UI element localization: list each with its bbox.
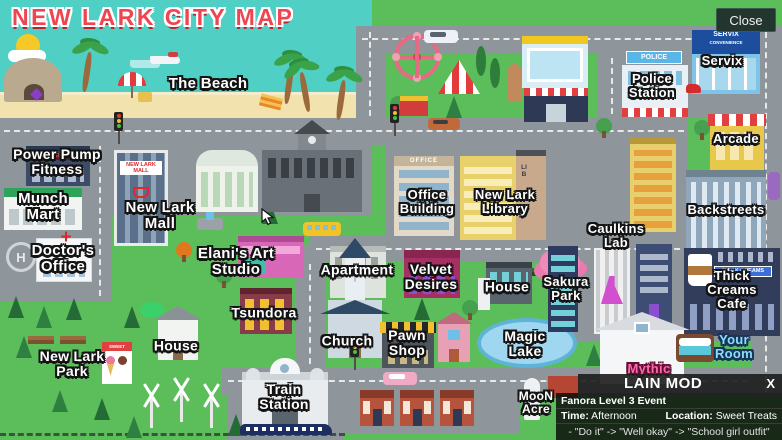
- cypress-tree-icon: [476, 46, 486, 76]
- row-house[interactable]: [440, 390, 474, 426]
- building-windows: [268, 158, 356, 178]
- park-bench-icon: [60, 336, 86, 344]
- door: [413, 409, 422, 426]
- bed-icon: [676, 334, 714, 362]
- building-windows: [718, 252, 774, 262]
- windmill-icon: [150, 392, 153, 428]
- map-label-caulkins-lab[interactable]: Caulkins Lab: [588, 222, 645, 250]
- map-label-tsundora[interactable]: Tsundora: [231, 305, 296, 320]
- map-label-munch-mart[interactable]: Munch Mart: [18, 191, 68, 223]
- window: [403, 401, 410, 414]
- road-marking: [369, 32, 371, 116]
- windmill-icon: [180, 386, 183, 422]
- mod-event-row: Fanora Level 3 Event: [556, 393, 782, 409]
- building-windows: [201, 172, 253, 207]
- windmill-icon: [210, 392, 213, 428]
- door: [449, 349, 459, 362]
- cypress-tree-icon: [490, 58, 500, 88]
- blanket: [679, 346, 711, 355]
- map-label-new-lark-mall[interactable]: New Lark Mall: [125, 200, 194, 232]
- shop-awning: [524, 88, 588, 96]
- lain-mod-panel: LAIN MOD X Fanora Level 3 Event Time: Af…: [556, 374, 782, 440]
- pillow: [679, 338, 711, 346]
- tree-icon: [52, 390, 68, 412]
- police-awning: [622, 108, 688, 117]
- station-turret: [246, 368, 260, 380]
- map-label-servix[interactable]: Servix: [702, 54, 743, 68]
- tree-icon: [94, 398, 110, 420]
- car-icon: [383, 372, 417, 385]
- circus-tent-icon: [438, 60, 480, 94]
- awning-shop-building[interactable]: [524, 88, 588, 122]
- map-label-apartment[interactable]: Apartment: [321, 262, 394, 277]
- tree-icon: [124, 306, 140, 328]
- map-label-your-room[interactable]: Your Room: [715, 333, 753, 361]
- time-value: Afternoon: [591, 410, 637, 422]
- mouse-cursor-icon: [260, 208, 276, 226]
- servix-sign: SERVIX CONVENIENCE: [692, 30, 760, 54]
- arcade-awning: [708, 114, 766, 126]
- umbrella-pole: [131, 86, 133, 98]
- mod-panel-title: LAIN MOD: [624, 375, 702, 392]
- car-icon: [768, 172, 780, 200]
- sweet-treats-stand[interactable]: SWEET TREATS: [102, 342, 132, 384]
- beach-chair-icon: [138, 92, 152, 102]
- map-label-new-lark-park[interactable]: New Lark Park: [40, 349, 105, 379]
- map-label-church[interactable]: Church: [322, 333, 373, 348]
- map-label-power-pump-fitness[interactable]: Power Pump Fitness: [13, 147, 101, 177]
- map-label-elanis-art-studio[interactable]: Elani's Art Studio: [198, 246, 274, 278]
- map-label-house-west[interactable]: House: [154, 338, 198, 353]
- statue-icon: [508, 64, 521, 102]
- office-sign: OFFICE: [394, 156, 454, 166]
- clock-icon: [308, 136, 316, 144]
- door: [373, 409, 382, 426]
- boat-icon: [150, 56, 180, 64]
- map-label-office-building[interactable]: Office Building: [400, 188, 454, 216]
- train-icon: [240, 424, 332, 435]
- tree-icon: [462, 300, 478, 316]
- scooter-icon: [686, 84, 701, 93]
- city-map: POWER PUMP + H NEW LARK MALL: [0, 0, 782, 440]
- car-icon: [424, 30, 458, 43]
- sweet-treats-sign: SWEET TREATS: [102, 342, 132, 351]
- storefront-building[interactable]: [522, 36, 588, 88]
- traffic-light-icon: [390, 104, 399, 123]
- servix-sign-subtext: CONVENIENCE: [692, 40, 760, 45]
- tree-icon: [126, 416, 142, 438]
- highrise-yellow-building[interactable]: [630, 138, 676, 232]
- store-window: [527, 48, 583, 82]
- map-label-thick-creams-cafe[interactable]: Thick Creams Cafe: [707, 269, 757, 311]
- map-label-magic-lake[interactable]: Magic Lake: [504, 329, 545, 359]
- tree-icon: [414, 298, 430, 320]
- building-windows: [634, 150, 672, 228]
- map-label-backstreets[interactable]: Backstreets: [687, 203, 764, 217]
- row-house[interactable]: [360, 390, 394, 426]
- map-label-pawn-shop[interactable]: Pawn Shop: [388, 328, 426, 358]
- train-windows: [246, 427, 326, 431]
- mod-time: Time: Afternoon: [561, 409, 637, 423]
- library-sign: LIB: [519, 164, 529, 178]
- door: [546, 104, 566, 122]
- map-label-the-beach[interactable]: The Beach: [169, 76, 248, 92]
- mod-dialog-row: - "Do it" -> "Well okay" -> "School girl…: [556, 424, 782, 440]
- bus-icon: [303, 222, 341, 236]
- bush-icon: [140, 302, 164, 318]
- map-label-train-station[interactable]: Train Station: [259, 382, 309, 412]
- boat-cabin: [168, 52, 178, 57]
- tree-icon: [446, 96, 462, 118]
- road-marking: [4, 130, 684, 132]
- map-label-police-station[interactable]: Police Station: [629, 72, 675, 100]
- road-marking: [309, 264, 311, 364]
- dome-building[interactable]: [196, 166, 258, 212]
- city-hall-building[interactable]: [262, 150, 362, 212]
- map-label-arcade[interactable]: Arcade: [713, 132, 759, 146]
- attic-window: [634, 322, 650, 334]
- road-marking: [611, 58, 613, 114]
- door: [453, 409, 462, 426]
- map-label-house-east[interactable]: House: [485, 279, 529, 294]
- location-value: Sweet Treats: [716, 410, 777, 422]
- station-clock-icon: [280, 364, 289, 373]
- mod-panel-header: LAIN MOD X: [578, 374, 782, 393]
- pink-house-building[interactable]: [438, 324, 470, 362]
- map-label-moon-acre[interactable]: MooN Acre: [519, 390, 554, 416]
- mall-sign: NEW LARK MALL: [120, 161, 162, 175]
- station-turret: [310, 368, 324, 380]
- cone-icon: [107, 364, 114, 376]
- close-button[interactable]: Close: [716, 8, 776, 32]
- tree-icon: [596, 118, 612, 134]
- shopping-basket-icon: [133, 187, 149, 198]
- page-title: NEW LARK CITY MAP: [12, 4, 294, 31]
- park-bench-icon: [28, 336, 54, 344]
- church-roof: [320, 300, 390, 314]
- map-label-new-lark-library[interactable]: New Lark Library: [475, 188, 535, 216]
- tree-icon: [36, 306, 52, 328]
- row-house[interactable]: [400, 390, 434, 426]
- time-label: Time:: [561, 410, 589, 422]
- mod-location: Location: Sweet Treats: [666, 409, 777, 423]
- dome-building-roof: [196, 150, 258, 166]
- mod-panel-close-icon[interactable]: X: [766, 376, 775, 391]
- ice-cream-icon: [106, 356, 115, 365]
- traffic-light-icon: [114, 112, 123, 131]
- window: [363, 401, 370, 414]
- building-windows: [640, 249, 668, 293]
- bus-windows: [307, 225, 337, 230]
- mod-status-row: Time: Afternoon Location: Sweet Treats: [556, 409, 782, 424]
- location-label: Location:: [666, 410, 713, 422]
- door: [304, 194, 320, 212]
- police-sign: POLICE: [626, 51, 682, 64]
- map-label-doctors-office[interactable]: Doctor's Office: [32, 243, 95, 275]
- map-label-velvet-desires[interactable]: Velvet Desires: [405, 262, 458, 292]
- window: [448, 330, 460, 340]
- car-icon: [428, 118, 460, 130]
- map-label-sakura-park[interactable]: Sakura Park: [543, 275, 588, 303]
- ticket-booth-icon: [400, 96, 428, 116]
- tree-icon: [176, 242, 192, 258]
- window: [443, 401, 450, 414]
